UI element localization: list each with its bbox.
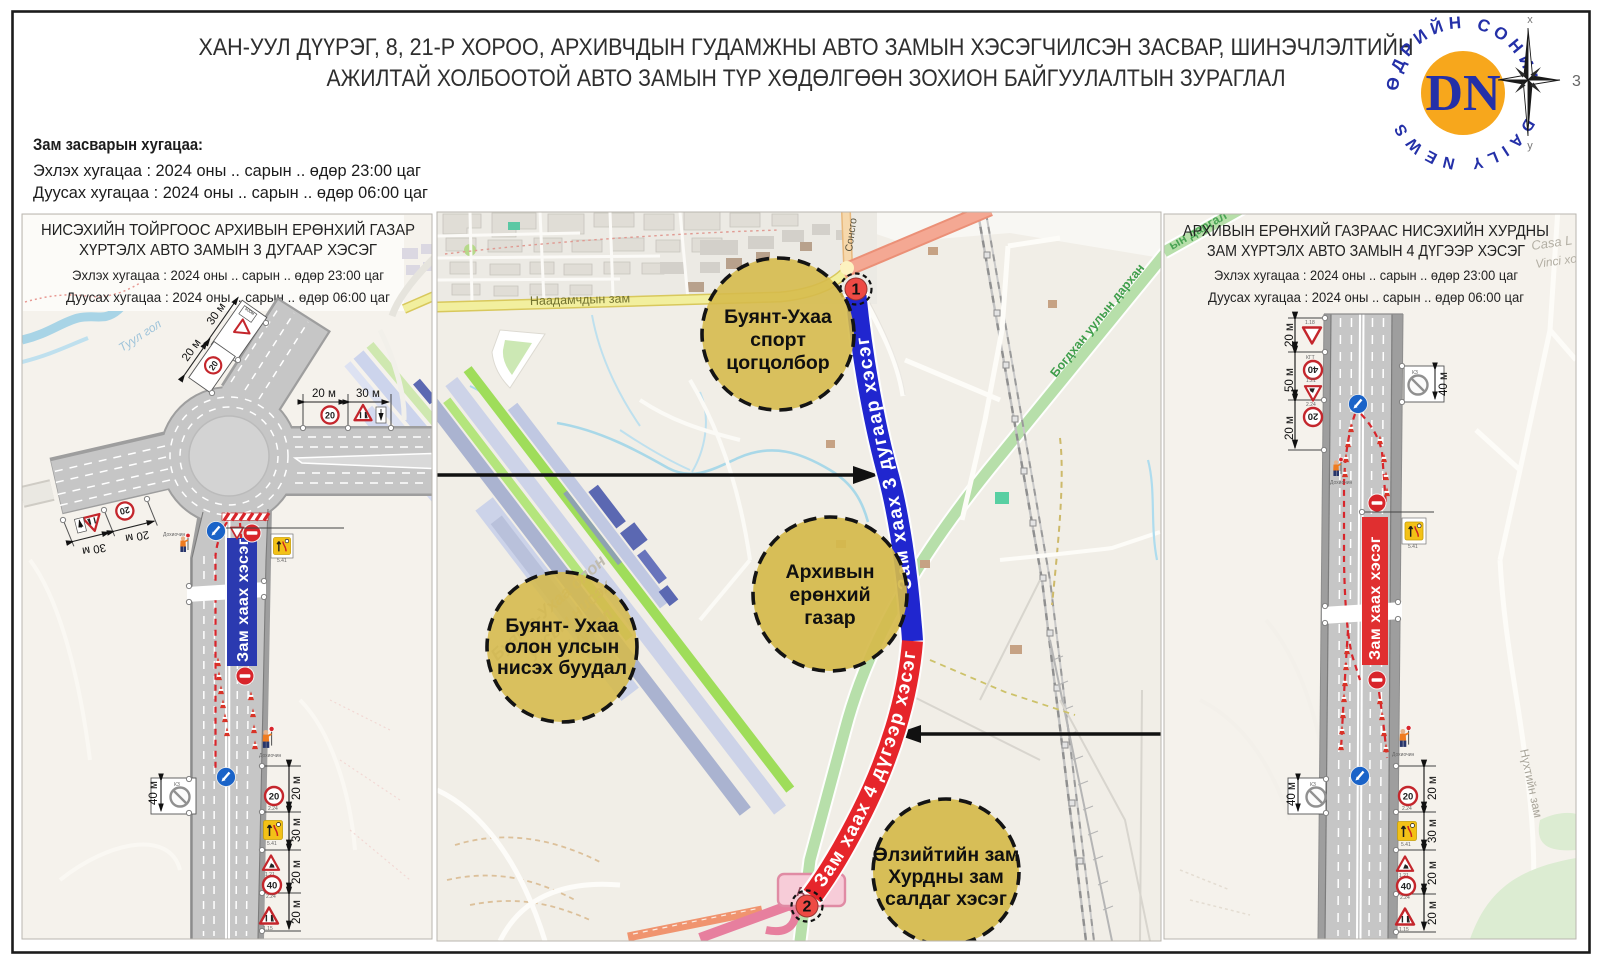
svg-text:20 м: 20 м [291, 860, 303, 884]
svg-text:20 м: 20 м [1284, 416, 1296, 440]
svg-text:Дуусах хугацаа : 2024 оны .. с: Дуусах хугацаа : 2024 оны .. сарын .. өд… [66, 289, 390, 305]
svg-text:1.15: 1.15 [263, 926, 273, 932]
svg-text:Дохиочин: Дохиочин [1330, 480, 1353, 486]
svg-text:5.41: 5.41 [267, 841, 277, 847]
svg-text:5.41: 5.41 [277, 558, 287, 564]
svg-text:20 м: 20 м [291, 900, 303, 924]
svg-text:Дохиочин: Дохиочин [163, 532, 186, 538]
svg-text:20 м: 20 м [312, 388, 336, 400]
svg-text:Өлзийтийн зам: Өлзийтийн зам [873, 844, 1020, 866]
svg-text:20 м: 20 м [1427, 901, 1439, 925]
svg-text:КГТ: КГТ [1306, 355, 1315, 361]
svg-text:спорт: спорт [750, 329, 806, 351]
svg-text:Буянт-Ухаа: Буянт-Ухаа [724, 306, 832, 328]
svg-text:Хурдны зам: Хурдны зам [888, 866, 1004, 888]
svg-text:2.24: 2.24 [1400, 895, 1410, 901]
svg-text:КЗ: КЗ [1310, 782, 1316, 788]
svg-text:Зам хаах хэсэг: Зам хаах хэсэг [235, 538, 252, 662]
svg-text:Зам засварын хугацаа:: Зам засварын хугацаа: [33, 135, 203, 154]
svg-text:Архивын: Архивын [786, 561, 875, 583]
svg-text:ХҮРТЭЛХ АВТО ЗАМЫН 3 ДУГААР ХЭ: ХҮРТЭЛХ АВТО ЗАМЫН 3 ДУГААР ХЭСЭГ [79, 242, 377, 259]
svg-text:у: у [1527, 140, 1533, 152]
svg-text:2.24: 2.24 [1306, 402, 1316, 408]
svg-text:2.24: 2.24 [266, 894, 276, 900]
svg-text:Эхлэх хугацаа : 2024 оны .. са: Эхлэх хугацаа : 2024 оны .. сарын .. өдө… [1214, 267, 1518, 283]
svg-text:40 м: 40 м [1438, 372, 1450, 396]
svg-text:Дуусах хугацаа : 2024 оны .. с: Дуусах хугацаа : 2024 оны .. сарын .. өд… [1208, 289, 1524, 305]
svg-text:1: 1 [852, 282, 861, 299]
svg-text:20 м: 20 м [1427, 861, 1439, 885]
svg-text:2: 2 [803, 899, 812, 916]
svg-text:Наадамчдын зам: Наадамчдын зам [530, 291, 631, 308]
svg-text:олон улсын: олон улсын [505, 636, 620, 658]
svg-text:КЗ: КЗ [174, 782, 180, 788]
svg-text:Дохиочин: Дохиочин [1392, 752, 1415, 758]
svg-text:30 м: 30 м [1427, 819, 1439, 843]
svg-text:DN: DN [1425, 65, 1500, 122]
svg-text:40 м: 40 м [1286, 782, 1298, 806]
svg-text:2.24: 2.24 [268, 806, 278, 812]
svg-text:20 м: 20 м [1284, 323, 1296, 347]
svg-text:АРХИВЫН ЕРӨНХИЙ ГАЗРААС НИСЭХИ: АРХИВЫН ЕРӨНХИЙ ГАЗРААС НИСЭХИЙН ХУРДНЫ [1183, 221, 1549, 240]
svg-text:40 м: 40 м [148, 781, 160, 805]
svg-text:20 м: 20 м [291, 776, 303, 800]
svg-text:ХАН-УУЛ ДҮҮРЭГ, 8, 21-Р ХОРОО,: ХАН-УУЛ ДҮҮРЭГ, 8, 21-Р ХОРОО, АРХИВЧДЫН… [199, 33, 1414, 61]
svg-text:50 м: 50 м [1284, 368, 1296, 392]
svg-text:нисэх буудал: нисэх буудал [497, 657, 627, 679]
svg-text:Дохиочин: Дохиочин [259, 753, 282, 759]
svg-text:1.15: 1.15 [1399, 927, 1409, 933]
svg-text:Дуусах хугацаа : 2024 оны .. с: Дуусах хугацаа : 2024 оны .. сарын .. өд… [33, 183, 428, 202]
svg-text:5.41: 5.41 [1408, 544, 1418, 550]
svg-text:цогцолбор: цогцолбор [726, 352, 830, 374]
svg-text:30 м: 30 м [356, 388, 380, 400]
svg-text:НИСЭХИЙН ТОЙРГООС АРХИВЫН ЕРӨН: НИСЭХИЙН ТОЙРГООС АРХИВЫН ЕРӨНХИЙ ГАЗАР [41, 220, 415, 239]
svg-text:х: х [1527, 14, 1533, 26]
svg-text:3: 3 [1572, 73, 1581, 90]
svg-text:КЗ: КЗ [1412, 370, 1418, 376]
svg-text:газар: газар [804, 607, 855, 629]
svg-text:20 м: 20 м [1427, 776, 1439, 800]
svg-text:салдаг хэсэг: салдаг хэсэг [885, 888, 1007, 910]
svg-text:Зам хаах хэсэг: Зам хаах хэсэг [1367, 536, 1384, 660]
svg-text:Эхлэх хугацаа : 2024 оны .. са: Эхлэх хугацаа : 2024 оны .. сарын .. өдө… [72, 267, 384, 283]
svg-text:ерөнхий: ерөнхий [789, 584, 870, 606]
svg-text:Буянт- Ухаа: Буянт- Ухаа [505, 615, 618, 637]
svg-text:30 м: 30 м [291, 818, 303, 842]
svg-text:АЖИЛТАЙ ХОЛБООТОЙ АВТО ЗАМЫН Т: АЖИЛТАЙ ХОЛБООТОЙ АВТО ЗАМЫН ТҮР ХӨДӨЛГӨ… [327, 64, 1286, 92]
svg-text:2.24: 2.24 [1402, 806, 1412, 812]
svg-text:5.41: 5.41 [1401, 842, 1411, 848]
svg-text:Эхлэх хугацаа : 2024 оны .. са: Эхлэх хугацаа : 2024 оны .. сарын .. өдө… [33, 161, 421, 180]
svg-text:ЗАМ ХҮРТЭЛХ АВТО ЗАМЫН 4 ДҮГЭЭ: ЗАМ ХҮРТЭЛХ АВТО ЗАМЫН 4 ДҮГЭЭР ХЭСЭГ [1207, 243, 1525, 260]
svg-text:1.18: 1.18 [1305, 320, 1315, 326]
svg-text:1.21: 1.21 [1306, 378, 1316, 384]
